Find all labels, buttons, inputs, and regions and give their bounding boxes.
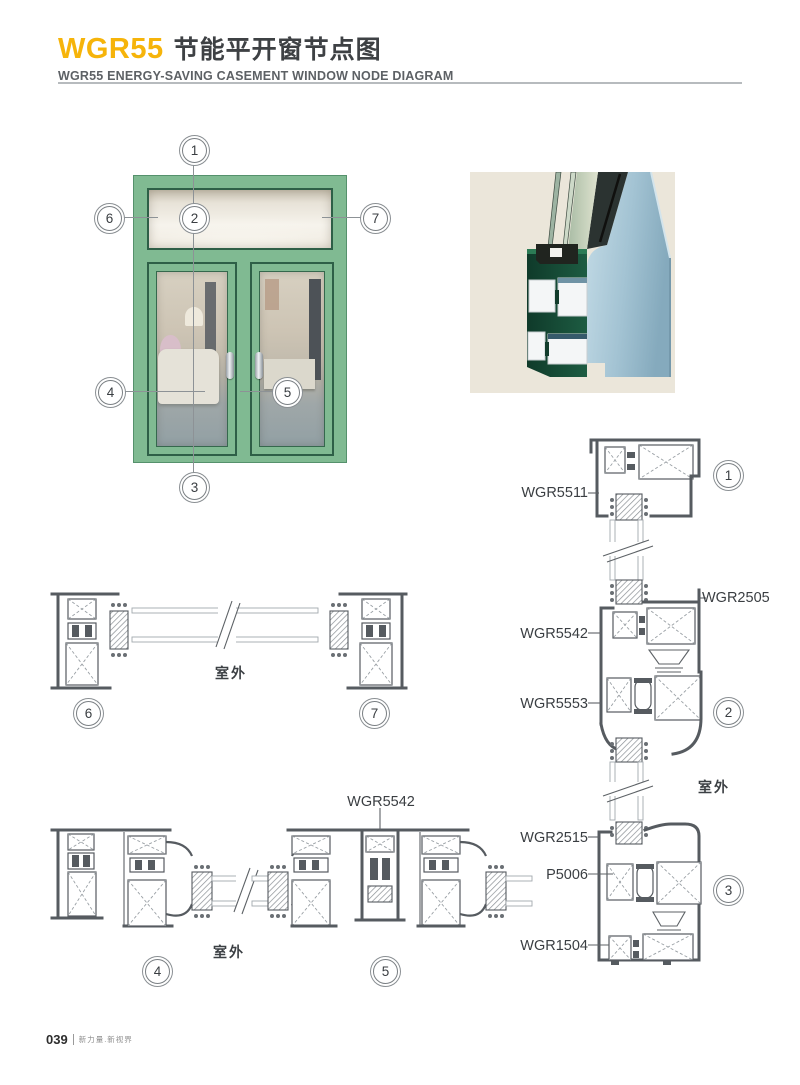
section-drawing-sash-horizontal	[40, 792, 540, 942]
left-sash-glass	[156, 271, 228, 447]
profile-chamber	[529, 280, 555, 312]
footer-divider	[73, 1034, 74, 1045]
callout-4: 4	[98, 380, 123, 405]
leader-line	[193, 162, 194, 206]
profile-3d-render	[470, 172, 675, 393]
callout-4-section: 4	[145, 959, 170, 984]
profile-chamber	[528, 332, 545, 360]
glass-photo-decor	[158, 349, 218, 405]
label-wgr2515: WGR2515	[506, 830, 588, 846]
callout-2-section: 2	[716, 700, 741, 725]
leader-line	[193, 230, 194, 475]
callout-3-section: 3	[716, 878, 741, 903]
header-divider	[58, 82, 742, 84]
page-footer: 039 新力量.新视界	[46, 1032, 133, 1047]
callout-6: 6	[97, 206, 122, 231]
callout-3: 3	[182, 475, 207, 500]
label-p5006: P5006	[506, 867, 588, 883]
callout-1: 1	[182, 138, 207, 163]
callout-1-section: 1	[716, 463, 741, 488]
outdoor-label: 室外	[698, 777, 730, 797]
right-sash-handle	[255, 352, 263, 379]
page-number: 039	[46, 1032, 68, 1047]
outdoor-label: 室外	[215, 663, 247, 683]
label-wgr5511: WGR5511	[506, 485, 588, 501]
glass-photo-decor	[205, 282, 216, 355]
label-wgr5542-horizontal: WGR5542	[340, 794, 422, 810]
callout-7: 7	[363, 206, 388, 231]
footer-tagline: 新力量.新视界	[79, 1034, 133, 1045]
leader-line	[121, 217, 158, 218]
transom-glass	[147, 188, 333, 250]
leader-line	[122, 391, 205, 392]
leader-line	[322, 217, 363, 218]
window-elevation-illustration	[133, 175, 347, 463]
label-wgr5542: WGR5542	[506, 626, 588, 642]
title-english: WGR55 ENERGY-SAVING CASEMENT WINDOW NODE…	[58, 69, 748, 83]
profile-chamber	[558, 278, 587, 316]
glass-photo-decor	[265, 279, 279, 310]
section-drawing-transom-horizontal	[48, 585, 410, 710]
label-wgr2505: WGR2505	[702, 590, 770, 606]
right-sash-glass	[259, 271, 325, 447]
callout-7-section: 7	[362, 701, 387, 726]
callout-6-section: 6	[76, 701, 101, 726]
callout-5: 5	[275, 380, 300, 405]
left-casement-sash	[147, 262, 237, 456]
title-chinese: 节能平开窗节点图	[174, 30, 382, 66]
outdoor-label: 室外	[213, 942, 245, 962]
catalog-page: WGR55 节能平开窗节点图 WGR55 ENERGY-SAVING CASEM…	[0, 0, 800, 1085]
callout-2: 2	[182, 206, 207, 231]
glass-photo-decor	[185, 307, 203, 326]
callout-5-section: 5	[373, 959, 398, 984]
page-header: WGR55 节能平开窗节点图 WGR55 ENERGY-SAVING CASEM…	[58, 30, 748, 83]
left-sash-handle	[226, 352, 234, 379]
leader-line	[240, 391, 275, 392]
brand-title: WGR55	[58, 33, 164, 66]
label-wgr5553: WGR5553	[506, 696, 588, 712]
label-wgr1504: WGR1504	[506, 938, 588, 954]
page-title: WGR55 节能平开窗节点图	[58, 30, 748, 66]
